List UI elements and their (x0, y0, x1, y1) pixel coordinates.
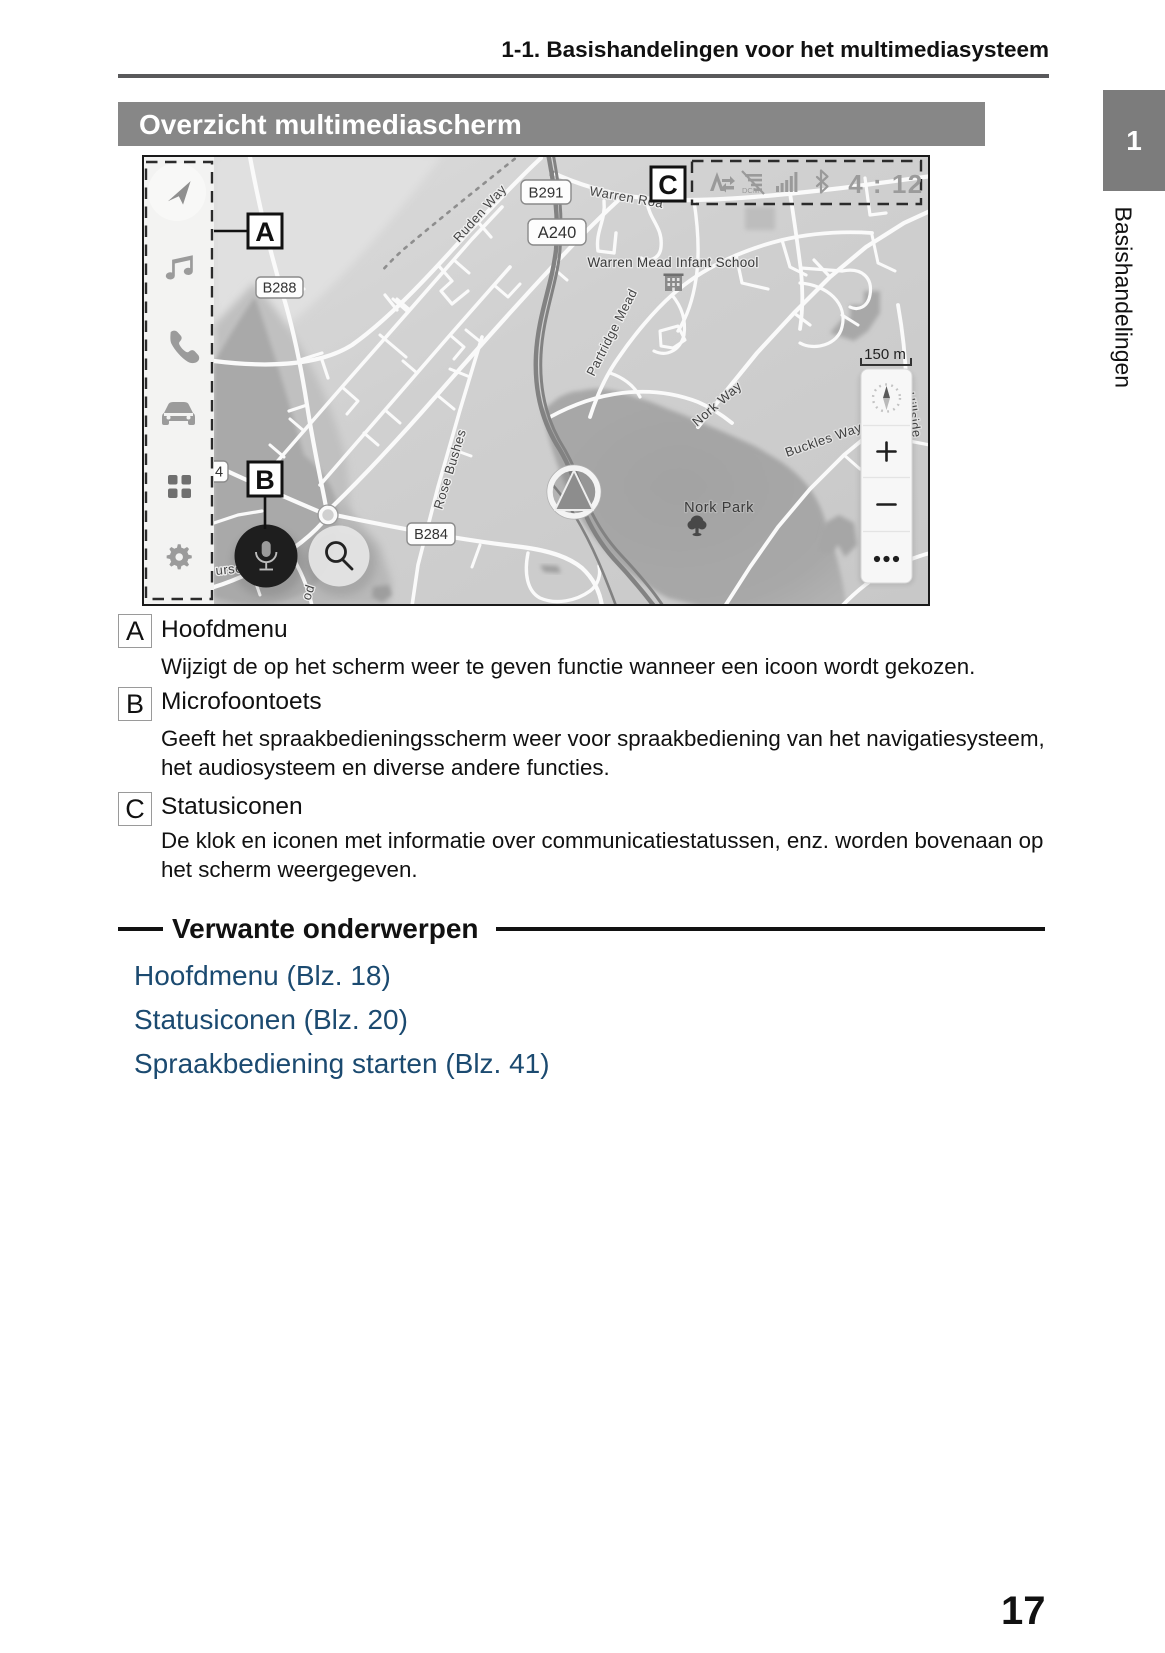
svg-text:B: B (255, 465, 275, 495)
svg-text:C: C (658, 170, 678, 200)
svg-text:B284: B284 (414, 527, 448, 543)
svg-text:4: 4 (215, 465, 223, 481)
svg-text:150 m: 150 m (864, 346, 906, 363)
svg-text:B291: B291 (528, 185, 563, 202)
svg-text:B288: B288 (263, 281, 297, 297)
svg-text:A240: A240 (538, 224, 577, 242)
svg-text:4 : 12: 4 : 12 (848, 169, 924, 199)
svg-text:Warren Mead Infant School: Warren Mead Infant School (587, 255, 758, 270)
svg-text:A: A (255, 217, 275, 247)
svg-text:Nork Park: Nork Park (684, 500, 754, 516)
